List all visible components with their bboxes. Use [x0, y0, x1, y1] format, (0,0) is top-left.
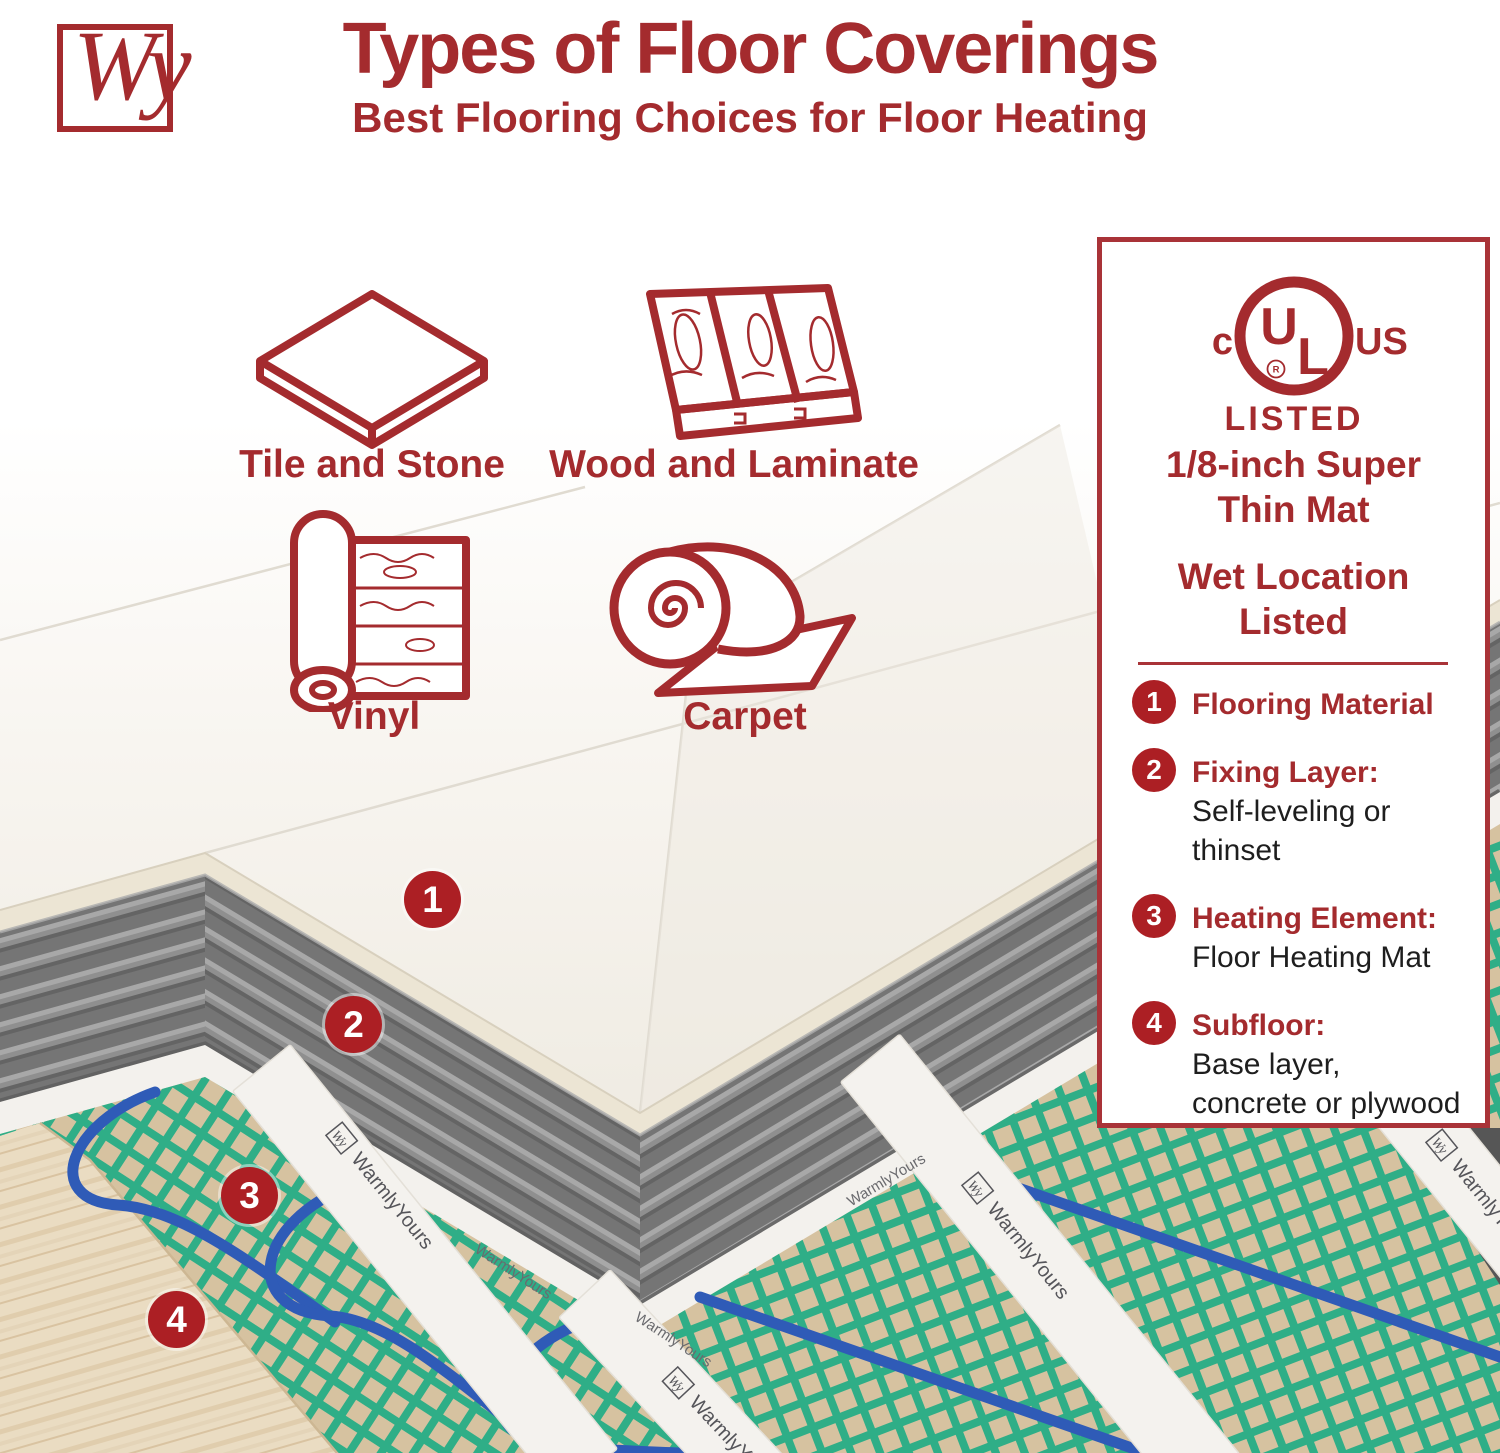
legend-badge-1: 1 [1132, 680, 1176, 724]
tile-and-stone-icon [252, 284, 492, 452]
page-title: Types of Floor Coverings [0, 10, 1500, 89]
ul-listed-mark: U L R c US LISTED [1102, 264, 1485, 442]
legend-badge-2: 2 [1132, 748, 1176, 792]
ul-registered: R [1272, 365, 1279, 376]
legend-item-flooring: 1 Flooring Material [1132, 680, 1462, 724]
layer-marker-4: 4 [148, 1291, 205, 1348]
label-vinyl: Vinyl [328, 695, 421, 739]
legend-badge-3: 3 [1132, 894, 1176, 938]
panel-divider [1138, 662, 1448, 665]
label-carpet: Carpet [683, 695, 807, 739]
legend-item-heating-element: 3 Heating Element: Floor Heating Mat [1132, 894, 1462, 977]
vinyl-icon [280, 500, 480, 712]
ul-c: c [1211, 321, 1232, 363]
wood-and-laminate-icon [610, 282, 862, 450]
layer-marker-2: 2 [325, 996, 382, 1053]
label-wood-and-laminate: Wood and Laminate [549, 443, 919, 487]
legend-item-fixing-layer: 2 Fixing Layer: Self-leveling or thinset [1132, 748, 1462, 870]
layer-marker-3: 3 [221, 1167, 278, 1224]
info-panel: U L R c US LISTED 1/8-inch Super Thin Ma… [1097, 237, 1490, 1128]
page-subtitle: Best Flooring Choices for Floor Heating [0, 95, 1500, 141]
legend-item-subfloor: 4 Subfloor: Base layer, concrete or plyw… [1132, 1001, 1462, 1123]
legend-badge-4: 4 [1132, 1001, 1176, 1045]
ul-us: US [1355, 321, 1408, 363]
feature-wet-location: Wet Location Listed [1102, 554, 1485, 644]
layer-marker-1: 1 [404, 871, 461, 928]
ul-listed-text: LISTED [1224, 400, 1363, 438]
infographic: Wy WarmlyYours Wy WarmlyYours Wy WarmlyY… [0, 0, 1500, 1453]
carpet-icon [598, 516, 860, 702]
label-tile-and-stone: Tile and Stone [239, 443, 505, 487]
ul-l: L [1297, 328, 1329, 386]
layer-legend: 1 Flooring Material 2 Fixing Layer: Self… [1132, 680, 1462, 1123]
feature-thin-mat: 1/8-inch Super Thin Mat [1102, 442, 1485, 532]
ul-u: U [1260, 298, 1298, 356]
